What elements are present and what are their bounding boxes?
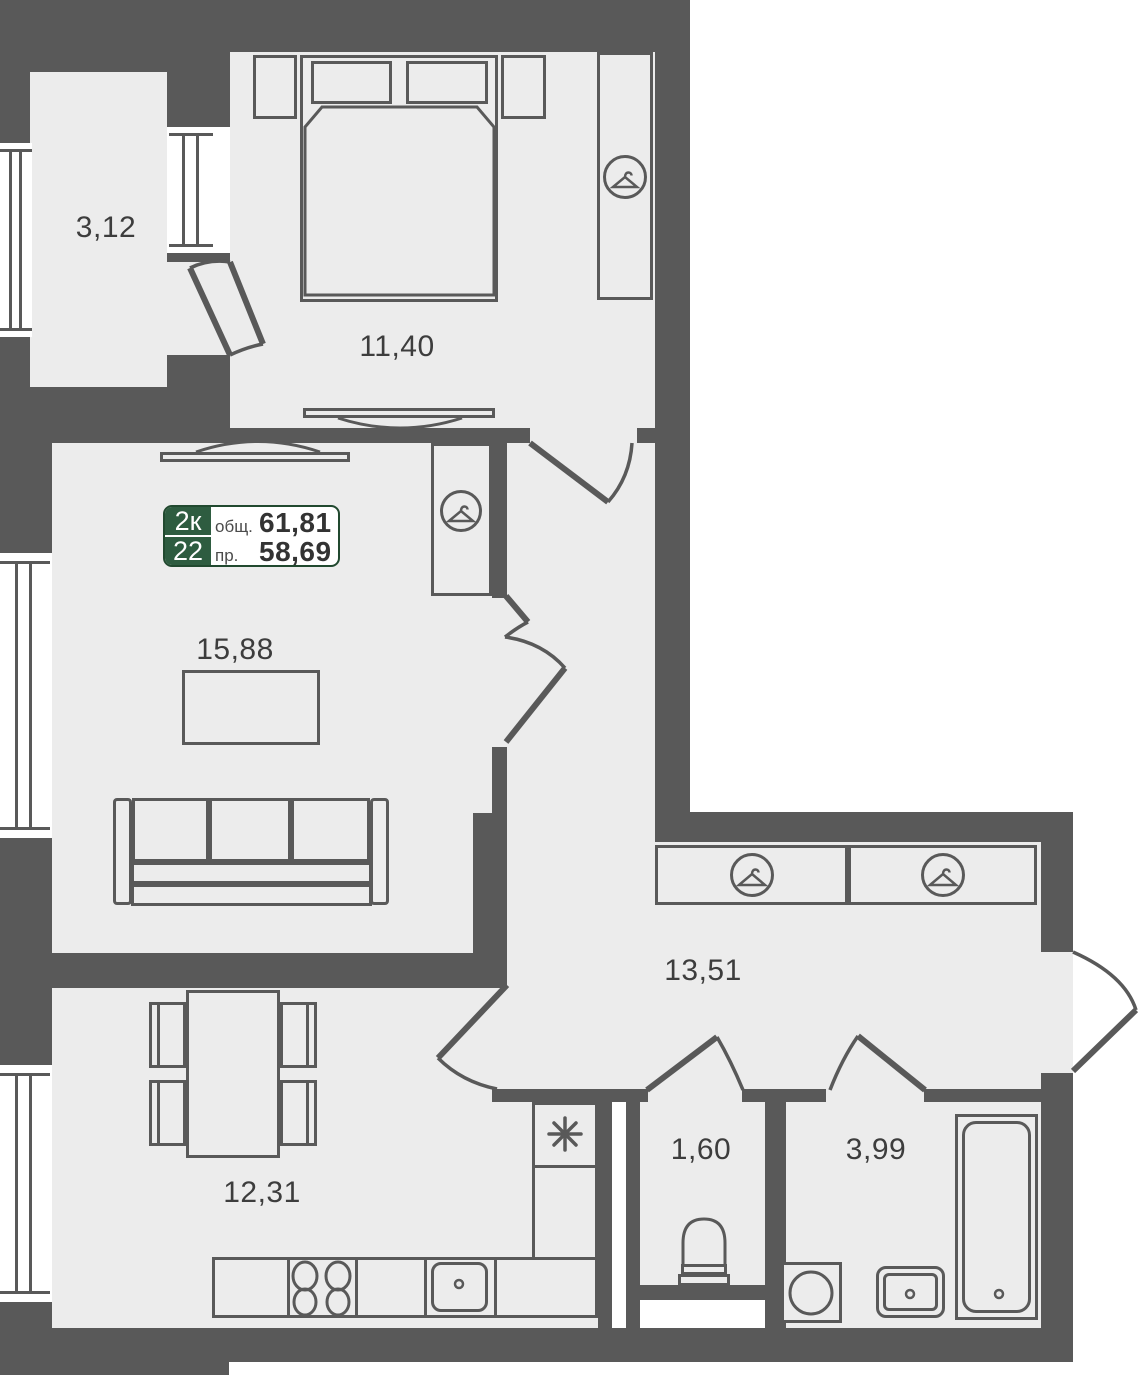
badge-total-area-value: 61,81 — [259, 507, 332, 539]
sofa-armrest-left — [113, 798, 132, 905]
badge-living-area-value: 58,69 — [259, 536, 332, 567]
window-kitchen — [0, 1065, 50, 1302]
room-label-wc: 1,60 — [671, 1133, 731, 1167]
badge-room-count: 2к — [175, 507, 202, 535]
dining-table — [186, 990, 280, 1158]
kitchen-sink — [431, 1262, 488, 1312]
wall-bedroom-bottom — [167, 428, 530, 443]
wall-bottom-left-extra — [0, 1362, 229, 1375]
floor-doorway-balcony — [167, 262, 230, 355]
tv-living — [160, 452, 350, 462]
sofa-cushion — [291, 798, 370, 862]
wall-bedroom-door-stub — [637, 428, 655, 443]
badge-living-area-label: пр. — [215, 546, 259, 566]
floor-doorway-wc — [648, 1089, 742, 1102]
nightstand-right — [501, 55, 546, 119]
window-balcony-left — [0, 143, 32, 337]
wall-balcony-bedroom-a — [167, 52, 230, 127]
wall-entrance-upper — [1041, 842, 1073, 952]
counter-divider — [287, 1257, 290, 1318]
vent-shaft — [612, 1102, 626, 1328]
floor-plan: 3,12 11,40 15,88 13,51 12,31 1,60 3,99 2… — [0, 0, 1140, 1375]
dining-chair — [149, 1002, 186, 1068]
sofa-seat — [131, 862, 372, 884]
wall-left-mid — [0, 838, 52, 1065]
wall-living-kitchen — [52, 953, 507, 988]
wall-bottom — [0, 1328, 1073, 1362]
counter-divider — [424, 1257, 427, 1318]
wall-living-corridor-a — [492, 443, 507, 598]
badge-unit-number: 22 — [173, 537, 203, 565]
wall-balcony-bedroom-b — [167, 253, 230, 262]
apartment-info-badge: 2к 22 общ. 61,81 пр. 58,69 — [163, 505, 340, 567]
sofa-cushion — [209, 798, 291, 862]
badge-total-area-label: общ. — [215, 517, 259, 537]
wardrobe-hall-1 — [655, 845, 848, 905]
kitchen-counter — [212, 1257, 598, 1318]
room-label-balcony: 3,12 — [76, 211, 136, 245]
wall-left-1 — [0, 0, 30, 143]
wall-left-living — [0, 430, 52, 553]
room-label-bathroom: 3,99 — [846, 1133, 906, 1167]
bath-sink-inner — [883, 1273, 938, 1311]
dining-chair — [280, 1080, 317, 1146]
wall-right-bedroom — [655, 0, 690, 842]
pillow-left — [311, 61, 392, 104]
dining-chair — [280, 1002, 317, 1068]
nightstand-left — [253, 55, 297, 119]
washing-machine — [781, 1262, 842, 1323]
wardrobe-hall-2 — [848, 845, 1037, 905]
wall-kitchen-right — [598, 1102, 612, 1328]
room-label-hallway: 13,51 — [664, 954, 742, 988]
floor-wc — [640, 1102, 765, 1285]
wardrobe-bedroom — [597, 52, 653, 300]
room-label-living: 15,88 — [196, 633, 274, 667]
sofa-seat — [131, 884, 372, 906]
wall-kitchen-hall-b — [742, 1089, 826, 1102]
floor-doorway-entrance — [1041, 952, 1073, 1073]
tv-bedroom — [303, 408, 495, 418]
wall-living-corridor-b — [492, 747, 507, 813]
floor-corridor — [507, 443, 655, 842]
kitchen-column — [532, 1102, 598, 1260]
wardrobe-living — [431, 443, 492, 596]
wall-wc-left — [626, 1102, 640, 1328]
badge-white-panel: общ. 61,81 пр. 58,69 — [211, 507, 339, 565]
room-label-kitchen: 12,31 — [223, 1176, 301, 1210]
toilet-tank — [678, 1274, 730, 1286]
window-balcony-bedroom — [169, 127, 213, 253]
badge-green-panel: 2к 22 — [165, 507, 211, 565]
wall-wc-bottom — [640, 1285, 765, 1300]
sofa-armrest-right — [370, 798, 389, 905]
wc-niche — [640, 1300, 765, 1328]
counter-divider — [494, 1257, 497, 1318]
column-divider — [532, 1165, 598, 1168]
dining-chair — [149, 1080, 186, 1146]
pillow-right — [406, 61, 488, 104]
wall-kitchen-hall-c — [924, 1089, 1041, 1102]
floor-doorway-bedroom — [530, 428, 637, 443]
wall-entrance-lower — [1041, 1073, 1073, 1362]
door-entrance — [1073, 952, 1136, 1071]
bathtub-inner — [962, 1121, 1031, 1313]
floor-doorway-living — [492, 598, 507, 747]
window-living — [0, 553, 50, 838]
counter-divider — [355, 1257, 358, 1318]
sofa-cushion — [132, 798, 209, 862]
wall-kitchen-hall-a — [492, 1089, 648, 1102]
floor-doorway-bathroom — [826, 1089, 924, 1102]
coffee-table — [182, 670, 320, 745]
room-label-bedroom: 11,40 — [359, 330, 434, 364]
wall-hall-top — [690, 812, 1073, 842]
